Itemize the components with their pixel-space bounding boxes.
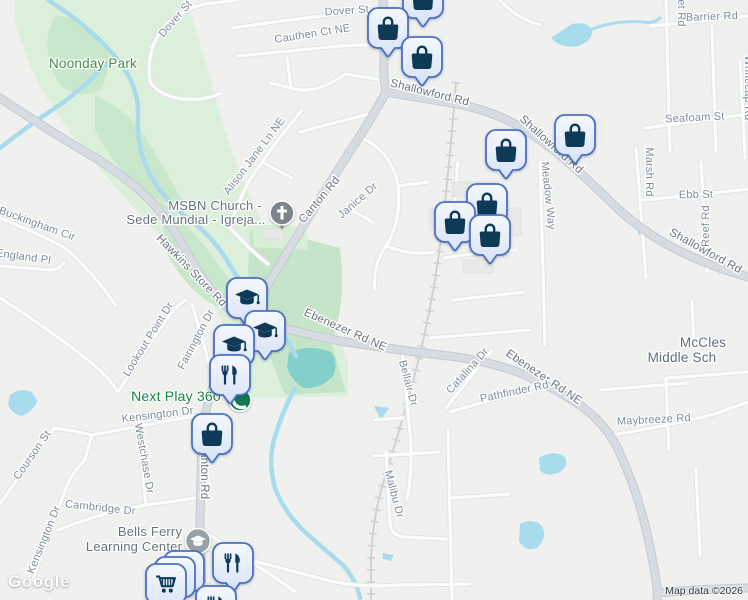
map-attribution: Map data ©2026: [665, 585, 743, 597]
poi-label[interactable]: MSBN Church -: [168, 198, 262, 213]
poi-label[interactable]: Next Play 360: [131, 388, 221, 404]
map-viewport[interactable]: Dover StDover StCauthen Ct NEShallowford…: [0, 0, 748, 600]
map-canvas[interactable]: Dover StDover StCauthen Ct NEShallowford…: [0, 0, 748, 600]
street-label: Ebb St: [679, 189, 713, 202]
poi-label[interactable]: Learning Center: [86, 539, 183, 554]
poi-label[interactable]: Middle Sch: [648, 350, 717, 365]
google-logo[interactable]: Google: [8, 572, 70, 592]
bag-icon: [413, 0, 434, 10]
church-building: [262, 229, 284, 239]
pin-body: [146, 564, 186, 600]
street-label: Barrier Rd: [686, 10, 739, 24]
poi-label[interactable]: Noonday Park: [49, 56, 137, 71]
street-label: Marsh Rd: [643, 147, 655, 196]
street-label: et Rd: [675, 0, 687, 27]
restaurant-marker[interactable]: [196, 586, 236, 600]
poi-label[interactable]: Bells Ferry: [118, 524, 183, 539]
pin-body: [196, 586, 236, 600]
poi-label[interactable]: Sede Mundial - Igreja...: [126, 212, 265, 227]
poi-label[interactable]: McCles: [680, 335, 726, 350]
street-label: Whitecap Rd: [742, 55, 748, 120]
street-label: Reef Rd: [700, 205, 712, 247]
